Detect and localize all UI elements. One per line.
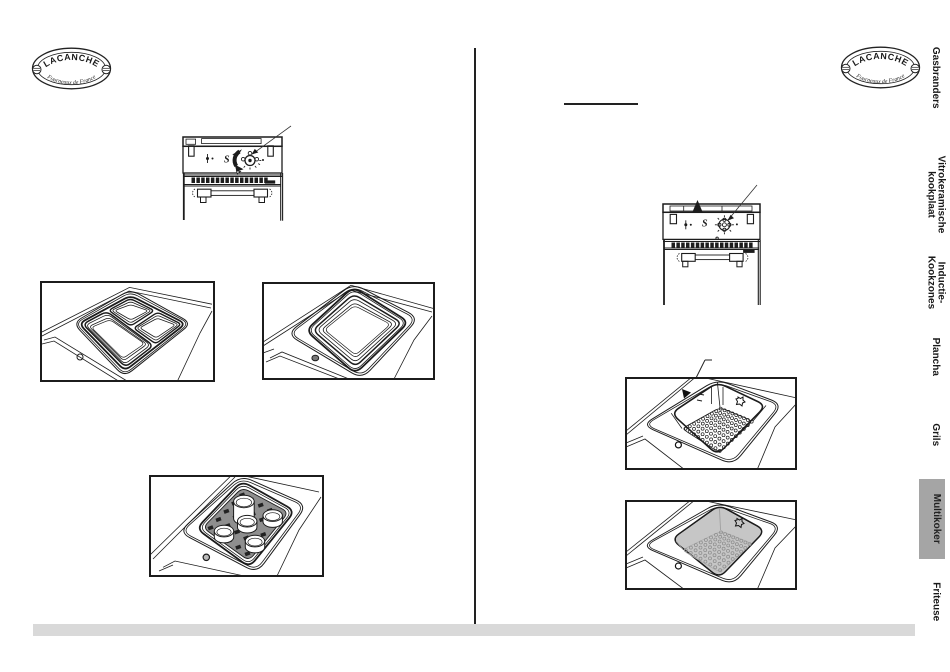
svg-text:S: S — [224, 155, 230, 166]
svg-text:LACANCHE: LACANCHE — [851, 51, 911, 68]
svg-text:Fourneaux de France: Fourneaux de France — [45, 74, 97, 86]
svg-text:Fourneaux de France: Fourneaux de France — [854, 73, 906, 85]
svg-text:LACANCHE: LACANCHE — [42, 52, 102, 69]
svg-text:S: S — [702, 219, 708, 230]
